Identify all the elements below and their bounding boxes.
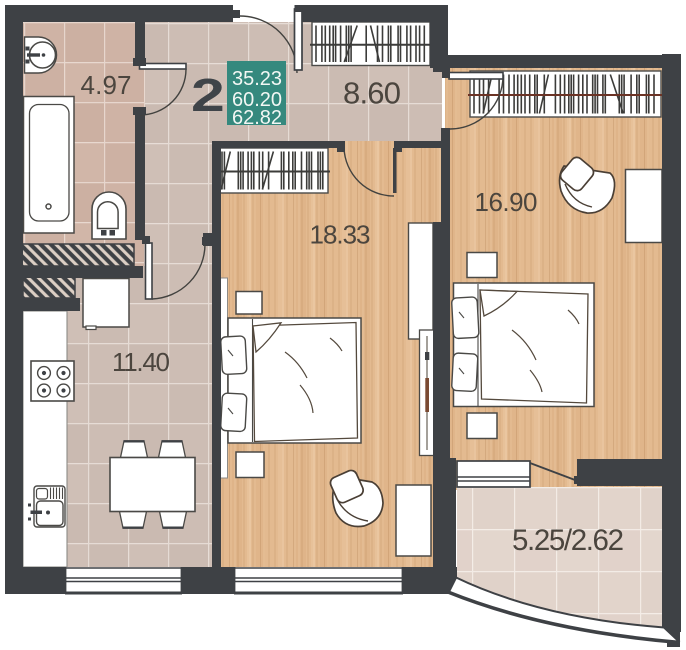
svg-text:4.97: 4.97 [81, 70, 132, 100]
svg-text:8.60: 8.60 [343, 76, 401, 111]
svg-text:2: 2 [191, 70, 225, 121]
svg-text:16.90: 16.90 [475, 187, 538, 217]
svg-text:11.40: 11.40 [112, 347, 170, 377]
svg-text:5.25/2.62: 5.25/2.62 [512, 524, 624, 557]
svg-text:18.33: 18.33 [310, 220, 371, 250]
svg-text:35.23: 35.23 [232, 68, 282, 90]
svg-text:62.82: 62.82 [232, 107, 282, 129]
